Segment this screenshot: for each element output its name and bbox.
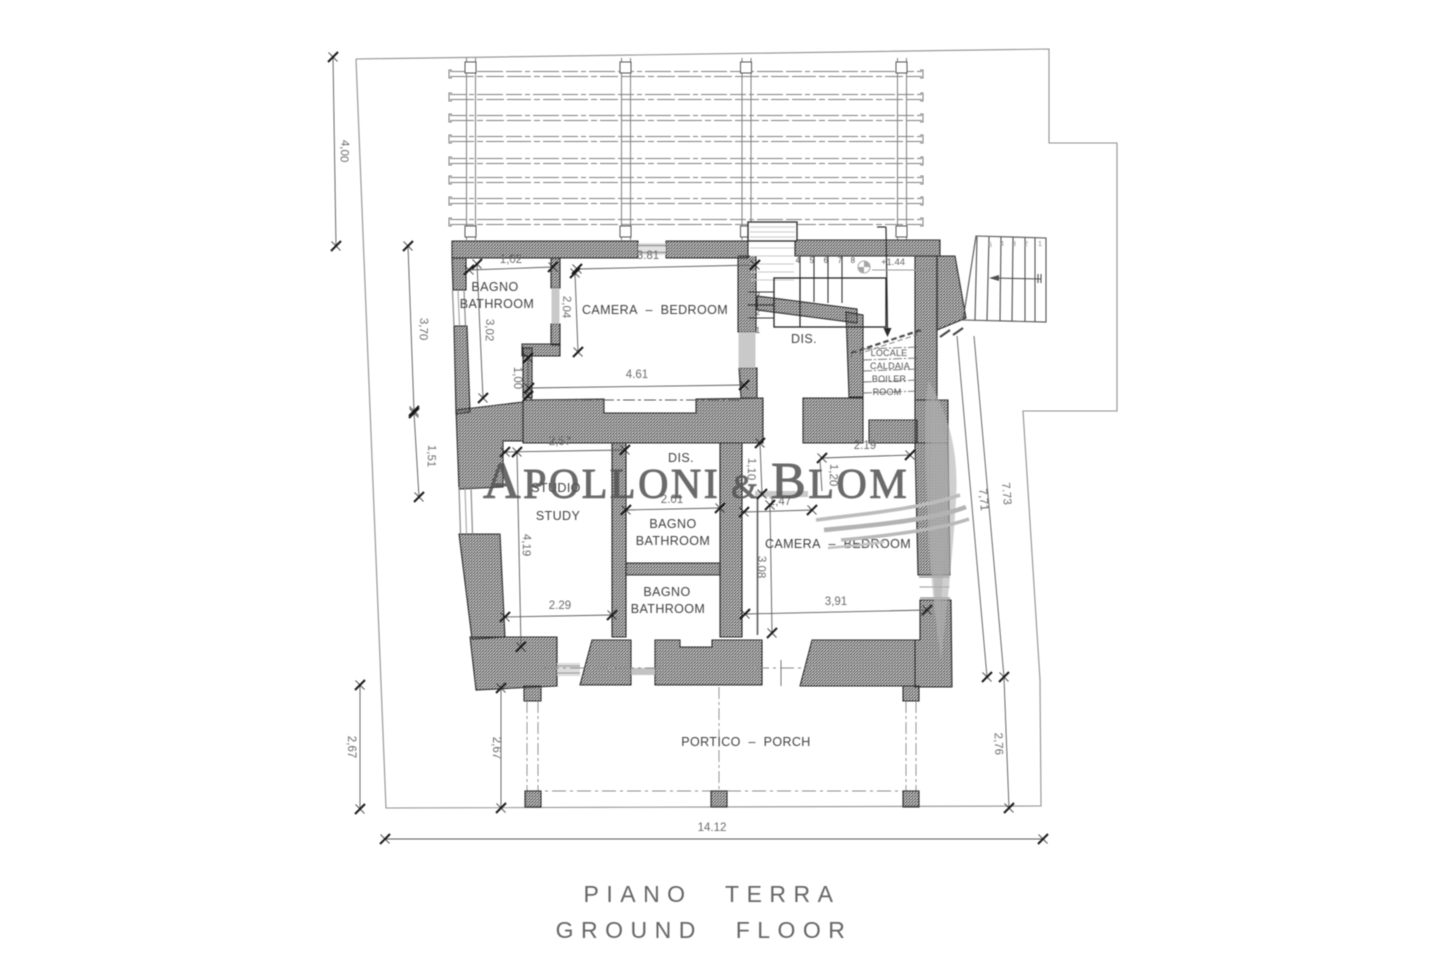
svg-text:3,02: 3,02 — [483, 319, 496, 342]
svg-text:3.81: 3.81 — [637, 250, 659, 262]
svg-text:2,76: 2,76 — [992, 732, 1005, 755]
svg-text:2.19: 2.19 — [854, 440, 876, 452]
svg-text:2,57: 2,57 — [549, 436, 571, 448]
svg-text:3: 3 — [756, 291, 761, 300]
svg-text:5: 5 — [988, 242, 992, 249]
svg-text:BAGNO: BAGNO — [643, 585, 690, 599]
svg-text:BATHROOM: BATHROOM — [636, 534, 711, 548]
svg-text:4.61: 4.61 — [626, 369, 648, 381]
svg-text:1: 1 — [756, 326, 761, 335]
svg-text:APOLLONI & BLOM: APOLLONI & BLOM — [483, 453, 909, 510]
svg-text:7,71: 7,71 — [976, 488, 990, 511]
svg-text:CAMERA – BEDROOM: CAMERA – BEDROOM — [582, 303, 728, 317]
svg-text:2.29: 2.29 — [549, 600, 571, 612]
svg-text:STUDY: STUDY — [536, 509, 581, 523]
svg-text:BAGNO: BAGNO — [649, 517, 696, 531]
svg-text:BATHROOM: BATHROOM — [460, 297, 535, 311]
svg-text:3,70: 3,70 — [417, 318, 430, 341]
svg-text:4,19: 4,19 — [520, 534, 533, 557]
svg-text:14.12: 14.12 — [698, 822, 727, 834]
svg-text:BATHROOM: BATHROOM — [631, 602, 706, 616]
svg-text:PORTICO – PORCH: PORTICO – PORCH — [681, 735, 811, 749]
svg-text:3,08: 3,08 — [755, 556, 768, 579]
svg-text:2,04: 2,04 — [560, 296, 573, 319]
svg-text:4: 4 — [1000, 241, 1004, 248]
svg-text:LOCALE: LOCALE — [871, 348, 908, 358]
svg-text:5: 5 — [810, 256, 815, 265]
svg-text:PIANO TERRA: PIANO TERRA — [584, 881, 841, 907]
svg-text:6: 6 — [824, 256, 829, 265]
svg-text:2: 2 — [756, 308, 761, 317]
svg-text:7: 7 — [838, 256, 843, 265]
svg-text:BAGNO: BAGNO — [471, 280, 518, 294]
svg-text:1,00: 1,00 — [511, 367, 523, 389]
svg-text:4: 4 — [796, 256, 801, 265]
svg-text:ROOM: ROOM — [873, 387, 902, 397]
svg-text:2,67: 2,67 — [345, 736, 357, 758]
svg-text:2,67: 2,67 — [490, 737, 502, 759]
svg-text:1,02: 1,02 — [500, 254, 522, 266]
svg-text:2: 2 — [1024, 241, 1028, 248]
svg-text:CALDAIA: CALDAIA — [870, 361, 910, 371]
svg-text:4,00: 4,00 — [337, 140, 350, 163]
svg-text:3,91: 3,91 — [825, 596, 847, 608]
svg-text:8: 8 — [851, 256, 856, 265]
svg-text:+1.44: +1.44 — [881, 257, 905, 268]
svg-text:1: 1 — [1038, 241, 1042, 248]
svg-text:BOILER: BOILER — [872, 374, 907, 384]
svg-text:CAMERA – BEDROOM: CAMERA – BEDROOM — [765, 537, 911, 551]
svg-text:7.73: 7.73 — [999, 482, 1013, 505]
svg-text:DIS.: DIS. — [791, 332, 817, 346]
svg-text:1,51: 1,51 — [425, 445, 438, 468]
svg-text:3: 3 — [1012, 241, 1016, 248]
svg-text:GROUND FLOOR: GROUND FLOOR — [556, 917, 853, 943]
